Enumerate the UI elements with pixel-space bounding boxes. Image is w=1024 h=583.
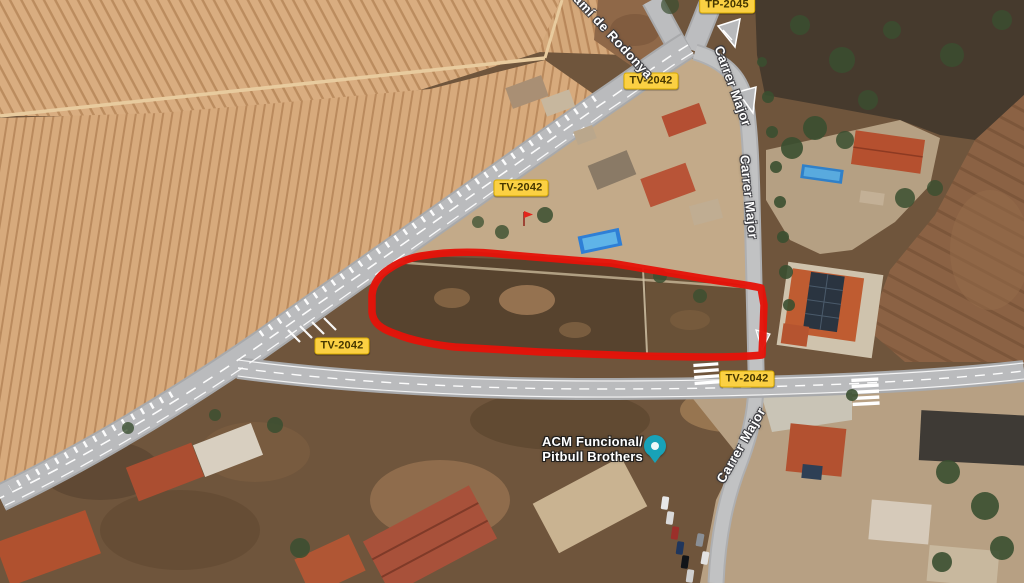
map-canvas[interactable]: TP-2045 TV-2042 TV-2042 TV-2042 TV-2042 … bbox=[0, 0, 1024, 583]
place-label[interactable]: ACM Funcional/ Pitbull Brothers bbox=[505, 434, 643, 464]
marker-dot bbox=[651, 442, 659, 450]
place-label-line1: ACM Funcional/ bbox=[505, 434, 643, 449]
place-label-line2: Pitbull Brothers bbox=[505, 449, 643, 464]
solar-roof-building bbox=[777, 262, 884, 359]
route-badge-tv-2042-east: TV-2042 bbox=[720, 371, 775, 388]
marker-tail bbox=[649, 455, 661, 463]
route-badge-tp-2045: TP-2045 bbox=[699, 0, 755, 14]
place-marker-icon[interactable] bbox=[644, 435, 666, 457]
satellite-imagery bbox=[0, 0, 1024, 583]
route-badge-tv-2042-mid: TV-2042 bbox=[494, 180, 549, 197]
route-badge-tv-2042-junction: TV-2042 bbox=[315, 338, 370, 355]
